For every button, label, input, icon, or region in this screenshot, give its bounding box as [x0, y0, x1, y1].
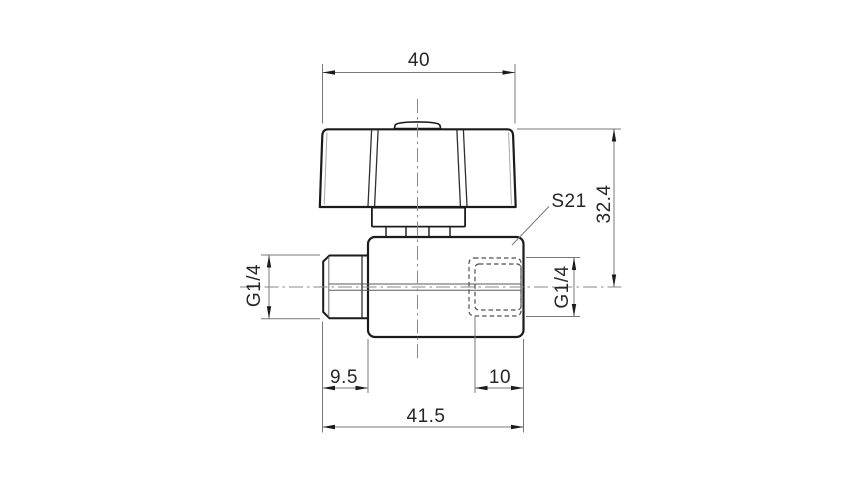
- valve-technical-drawing: 40 32.4 S21 G1/4 G1/4: [0, 0, 868, 484]
- dim-10-arrow-right: [511, 386, 524, 390]
- dim-overall-length: 41.5: [323, 406, 524, 429]
- dim-32-4-arrow-top: [612, 129, 616, 142]
- dim-40-value: 40: [408, 50, 430, 71]
- dim-10-arrow-left: [475, 386, 488, 390]
- wrench-size-callout: S21: [512, 191, 587, 245]
- dim-g14-left-arrow-bottom: [267, 306, 271, 319]
- dim-g14-left-value: G1/4: [244, 264, 265, 307]
- dim-41-5-value: 41.5: [407, 406, 446, 427]
- valve-stem: [372, 208, 465, 237]
- dim-32-4-arrow-bottom: [612, 275, 616, 288]
- dim-thread-depth: 10: [475, 367, 524, 390]
- drawing-canvas: 40 32.4 S21 G1/4 G1/4: [0, 0, 868, 484]
- s21-label: S21: [551, 191, 586, 212]
- dim-9-5-value: 9.5: [330, 367, 358, 388]
- dim-g14-right-value: G1/4: [552, 265, 573, 308]
- dim-32-4-value: 32.4: [594, 185, 615, 224]
- dim-10-value: 10: [489, 367, 511, 388]
- dim-41-5-arrow-right: [511, 425, 524, 429]
- dim-40-arrow-left: [323, 70, 336, 74]
- s21-leader-line: [512, 207, 549, 246]
- dim-male-thread-length: 9.5: [323, 367, 369, 390]
- dim-handle-width: 40: [323, 50, 516, 124]
- stem-neck: [372, 208, 465, 227]
- dim-41-5-arrow-left: [323, 425, 336, 429]
- dim-g14-left-arrow-top: [267, 255, 271, 268]
- dim-40-arrow-right: [503, 70, 516, 74]
